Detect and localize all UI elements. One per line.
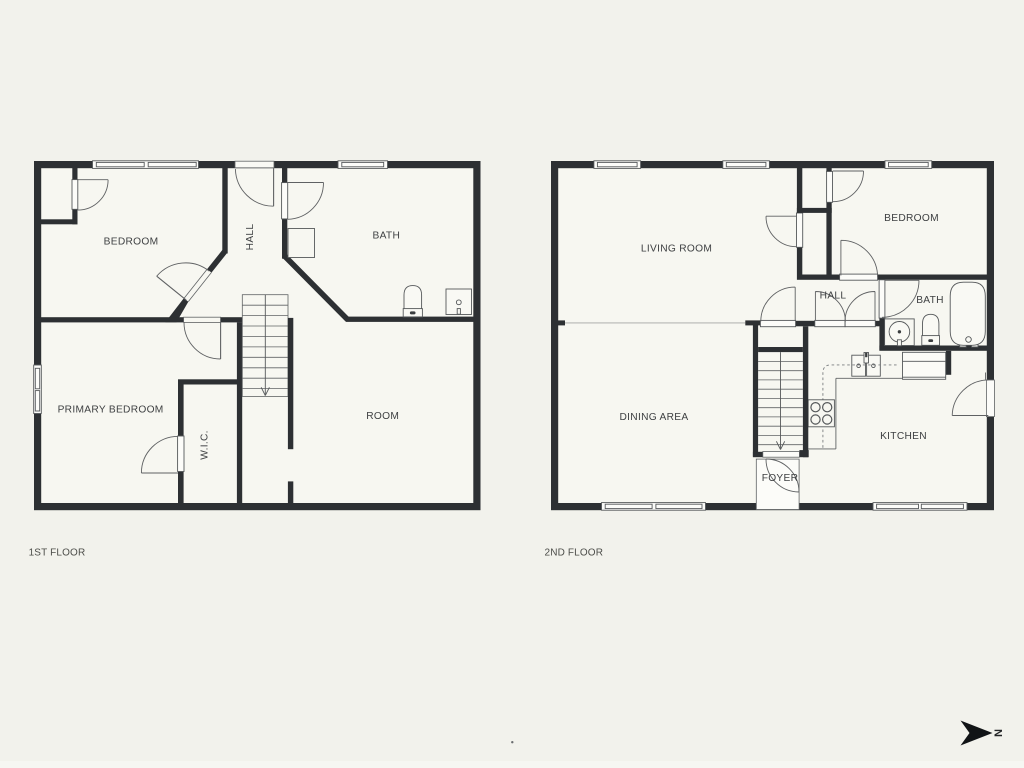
svg-text:HALL: HALL [820, 290, 847, 301]
svg-text:W.I.C.: W.I.C. [200, 430, 211, 460]
svg-text:BATH: BATH [916, 295, 944, 306]
svg-text:ROOM: ROOM [366, 411, 399, 422]
svg-text:1ST FLOOR: 1ST FLOOR [29, 548, 86, 559]
svg-text:DINING AREA: DINING AREA [620, 412, 689, 423]
svg-text:BEDROOM: BEDROOM [884, 213, 939, 224]
svg-text:LIVING ROOM: LIVING ROOM [641, 244, 712, 255]
svg-text:2ND FLOOR: 2ND FLOOR [545, 548, 604, 559]
svg-text:HALL: HALL [245, 224, 256, 251]
svg-text:BATH: BATH [372, 230, 400, 241]
svg-text:KITCHEN: KITCHEN [880, 431, 927, 442]
svg-text:BEDROOM: BEDROOM [104, 236, 159, 247]
svg-text:PRIMARY BEDROOM: PRIMARY BEDROOM [58, 405, 164, 416]
svg-text:FOYER: FOYER [762, 473, 799, 484]
svg-text:N: N [992, 729, 1004, 737]
